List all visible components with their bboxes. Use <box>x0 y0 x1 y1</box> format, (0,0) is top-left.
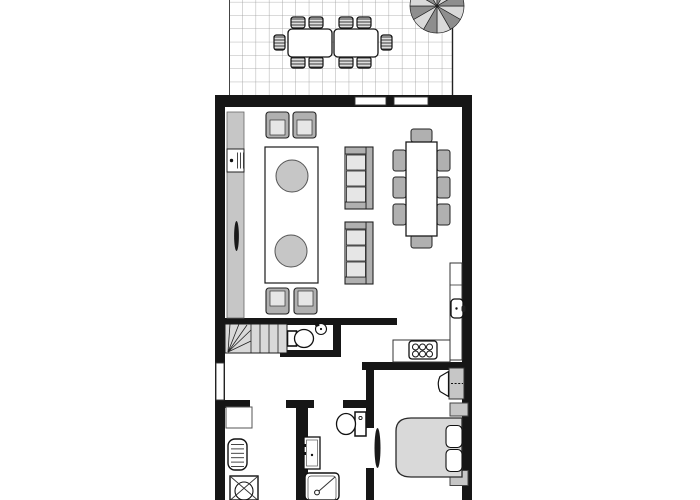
sofa-arm <box>345 202 366 209</box>
terrace-chair <box>381 35 392 50</box>
wc-toilet <box>288 330 314 348</box>
sink-drain <box>311 454 313 456</box>
utility-cabinet <box>226 407 252 428</box>
sideboard <box>227 112 244 318</box>
hinge-tick <box>304 452 307 455</box>
terrace-chair <box>309 57 323 68</box>
radiator-boiler <box>228 439 247 470</box>
pillow <box>446 426 462 448</box>
wc <box>288 322 327 348</box>
desk-chair <box>438 372 448 397</box>
dining-chair <box>411 235 432 248</box>
dining-chair <box>437 204 450 225</box>
sofa-back <box>366 147 373 209</box>
sofa-cushion <box>347 187 366 202</box>
kitchen <box>393 263 466 362</box>
bedroom <box>375 368 469 486</box>
floor-plan <box>0 0 700 500</box>
basin-drain <box>320 328 322 330</box>
terrace-chair <box>357 17 371 28</box>
dining-chair <box>393 150 406 171</box>
sofa <box>345 147 373 209</box>
armchair <box>294 288 317 314</box>
dining-chair <box>437 150 450 171</box>
nightstand <box>450 403 468 416</box>
sofa <box>345 222 373 284</box>
hallway-left-window <box>216 363 224 400</box>
tv-dot-icon <box>230 159 233 162</box>
kitchen-sink <box>451 299 466 318</box>
sofa-arm <box>345 277 366 284</box>
washing-machine <box>230 476 258 500</box>
bathroom-bedroom-wall-lower <box>366 468 374 500</box>
desk-area <box>438 368 464 399</box>
sofa-arm <box>345 147 366 154</box>
sofa-cushion <box>347 230 366 245</box>
shower <box>305 473 339 500</box>
terrace <box>229 0 464 95</box>
bathroom-toilet <box>337 412 367 436</box>
dining-chair <box>411 129 432 142</box>
tv-cabinet <box>227 149 244 172</box>
sink-drain <box>455 307 457 309</box>
dining-table <box>406 142 437 236</box>
armchair <box>266 288 289 314</box>
utility-room <box>226 407 258 500</box>
armchair <box>266 112 289 138</box>
dining-chair <box>393 204 406 225</box>
round-coffee-table <box>275 235 307 267</box>
outdoor-dining-table-1 <box>288 29 332 57</box>
burner <box>413 344 419 350</box>
burner <box>427 344 433 350</box>
sofa-cushion <box>347 262 366 277</box>
pillow <box>446 450 462 472</box>
bathroom <box>304 412 367 500</box>
tv-unit <box>227 149 244 172</box>
sofa-back <box>366 222 373 284</box>
sofa-cushion <box>347 246 366 261</box>
burner <box>427 351 433 357</box>
top-wall-window-2 <box>394 97 428 105</box>
terrace-chair <box>291 57 305 68</box>
bathroom-bedroom-wall-upper <box>366 370 374 428</box>
shower-drain <box>315 490 320 495</box>
bedroom-door-leaf <box>375 428 381 468</box>
dining-chair <box>437 177 450 198</box>
dining-chair <box>393 177 406 198</box>
living-dining-room <box>227 112 450 318</box>
burner <box>420 351 426 357</box>
wc-bottom-wall <box>280 350 341 357</box>
burner <box>420 344 426 350</box>
round-coffee-table <box>276 160 308 192</box>
burner <box>413 351 419 357</box>
terrace-chair <box>309 17 323 28</box>
terrace-chair <box>339 57 353 68</box>
hinge-tick <box>304 444 307 447</box>
terrace-chair <box>274 35 285 50</box>
cooktop-6-burner <box>409 341 437 359</box>
armchair <box>293 112 316 138</box>
right-wall <box>462 95 472 500</box>
terrace-chair <box>339 17 353 28</box>
top-wall <box>215 95 472 107</box>
vanity-sink <box>304 437 321 469</box>
terrace-chair <box>291 17 305 28</box>
outdoor-dining-table-2 <box>334 29 378 57</box>
faucet-icon <box>462 306 466 313</box>
sofa-cushion <box>347 155 366 170</box>
hall-bottom-wall-mid <box>286 400 314 408</box>
top-wall-window-1 <box>355 97 386 105</box>
staircase <box>225 324 287 353</box>
sofa-cushion <box>347 171 366 186</box>
hall-bottom-wall-right <box>343 400 366 408</box>
dining-set <box>393 129 450 248</box>
sideboard-handle-detail <box>234 221 239 251</box>
sofa-arm <box>345 222 366 229</box>
left-wall <box>215 95 225 500</box>
terrace-chair <box>357 57 371 68</box>
